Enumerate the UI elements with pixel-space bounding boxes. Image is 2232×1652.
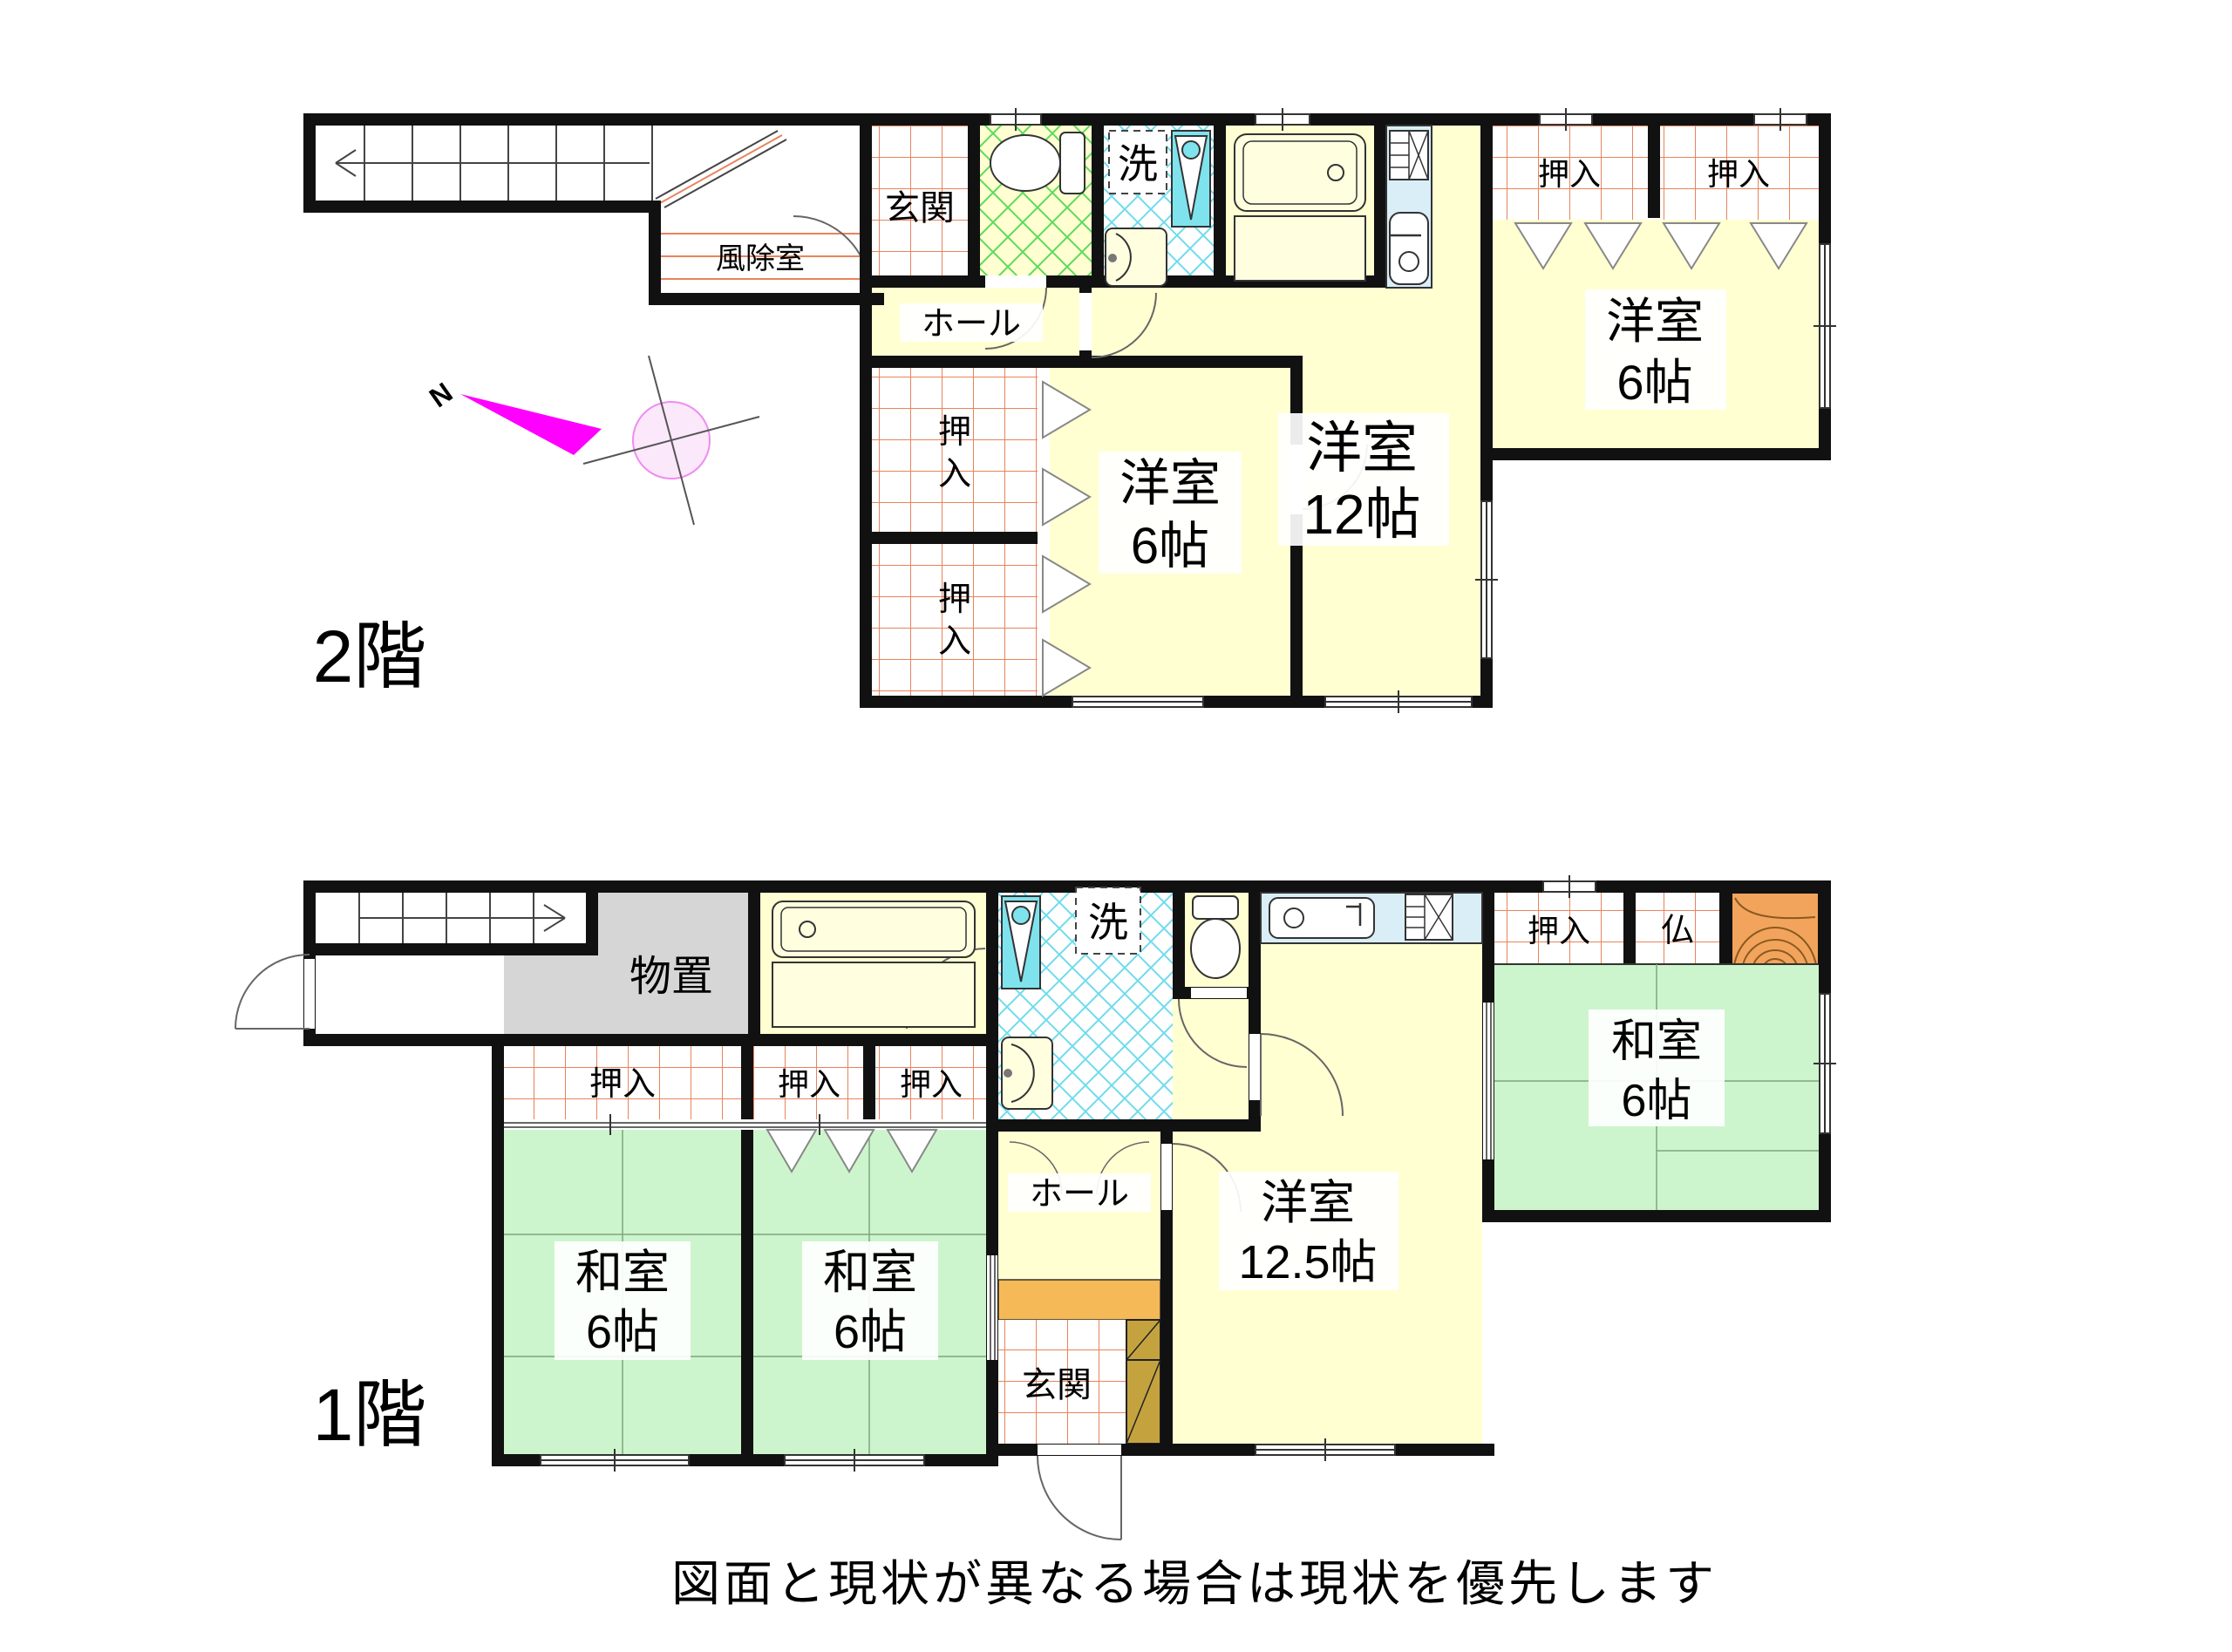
western6-east-label: 洋室 6帖 — [1585, 289, 1726, 410]
closet-triangles-1f — [767, 1130, 936, 1172]
compass: N — [424, 356, 759, 525]
western12-label: 洋室 12帖 — [1278, 413, 1449, 546]
sliding-opening-room2 — [987, 1255, 997, 1360]
svg-text:和室: 和室 — [823, 1247, 917, 1299]
svg-text:12.5帖: 12.5帖 — [1238, 1236, 1377, 1288]
floor1-title: 1階 — [313, 1374, 427, 1456]
floor2-title: 2階 — [313, 615, 427, 697]
sliding-opening-east — [1483, 1003, 1494, 1159]
kitchen-counter-2f — [1386, 126, 1432, 288]
entry-1f-label: 玄関 — [1022, 1366, 1092, 1404]
svg-text:洋室: 洋室 — [1119, 455, 1221, 512]
hall-2f-label: ホール — [900, 303, 1043, 343]
japanese-room-east-label: 和室 6帖 — [1589, 1010, 1725, 1126]
bathtub-1f — [772, 901, 975, 1027]
floor-plan-drawing: 風除室 玄関 洗 ホール 押 入 押 入 洋室 6帖 洋室 12帖 押入 押入 … — [0, 0, 2232, 1652]
svg-text:6帖: 6帖 — [1616, 355, 1692, 410]
closet-east2-label: 押入 — [1707, 156, 1770, 192]
svg-text:6帖: 6帖 — [1622, 1076, 1692, 1126]
entry-step — [998, 1280, 1160, 1320]
second-floor-plan: 風除室 玄関 洗 ホール 押 入 押 入 洋室 6帖 洋室 12帖 押入 押入 … — [303, 108, 1836, 713]
closet-1f-c-label: 押入 — [900, 1066, 963, 1102]
svg-text:洗: 洗 — [1088, 900, 1128, 945]
closet-2f-a-label1: 押 — [938, 414, 971, 451]
windbreak-label: 風除室 — [716, 242, 805, 275]
shoe-cabinet — [1126, 1320, 1160, 1444]
svg-text:和室: 和室 — [575, 1247, 670, 1299]
north-arrow — [460, 394, 602, 455]
wash-1f-label: 洗 — [1076, 887, 1140, 954]
porch-1f — [316, 955, 504, 1034]
basin-1f — [1002, 1037, 1052, 1109]
washing-machine-2f — [1172, 131, 1210, 227]
wash-2f-label: 洗 — [1109, 131, 1167, 194]
toilet-1f — [1191, 896, 1240, 978]
north-label: N — [424, 377, 459, 414]
floor-plan-page: 風除室 玄関 洗 ホール 押 入 押 入 洋室 6帖 洋室 12帖 押入 押入 … — [0, 0, 2232, 1652]
butsudan-label: 仏 — [1661, 913, 1694, 949]
closet-2f-b — [872, 544, 1038, 696]
svg-text:6帖: 6帖 — [1131, 518, 1209, 574]
storage-label: 物置 — [629, 954, 713, 1000]
entry-2f-label: 玄関 — [885, 189, 955, 228]
svg-text:ホール: ホール — [1030, 1176, 1129, 1213]
western6-center-label: 洋室 6帖 — [1099, 452, 1242, 574]
basin-2f — [1106, 228, 1167, 286]
svg-text:12帖: 12帖 — [1303, 483, 1420, 546]
svg-text:洗: 洗 — [1118, 141, 1158, 187]
closet-1f-a-label: 押入 — [589, 1066, 656, 1103]
svg-text:和室: 和室 — [1611, 1016, 1702, 1067]
closet-1f-b-label: 押入 — [778, 1066, 840, 1102]
closet-2f-b-label2: 入 — [938, 623, 971, 660]
closet-2f-b-label1: 押 — [938, 581, 971, 618]
bathtub-2f — [1235, 134, 1365, 281]
svg-text:6帖: 6帖 — [586, 1306, 659, 1358]
svg-text:洋室: 洋室 — [1306, 417, 1418, 479]
first-floor-plan: 物置 押入 押入 押入 洗 和室 6帖 和室 6帖 ホール 玄関 洋室 12.5… — [235, 875, 1836, 1540]
western-12-5-label: 洋室 12.5帖 — [1219, 1172, 1398, 1290]
washing-machine-1f — [1002, 896, 1040, 989]
hall-1f-label: ホール — [1008, 1173, 1151, 1213]
kitchen-counter-1f — [1261, 893, 1482, 943]
disclaimer-note: 図面と現状が異なる場合は現状を優先します — [671, 1556, 1718, 1611]
svg-text:ホール: ホール — [922, 306, 1021, 343]
closet-east1-label: 押入 — [1538, 156, 1601, 192]
svg-text:洋室: 洋室 — [1261, 1177, 1355, 1229]
svg-text:洋室: 洋室 — [1606, 294, 1704, 349]
japanese-room-1-label: 和室 6帖 — [555, 1241, 691, 1360]
closet-1f-east-label: 押入 — [1528, 913, 1590, 948]
closet-2f-a-label2: 入 — [938, 456, 971, 493]
svg-text:6帖: 6帖 — [834, 1306, 907, 1358]
japanese-room-2-label: 和室 6帖 — [802, 1241, 938, 1360]
toilet-2f — [990, 133, 1085, 194]
